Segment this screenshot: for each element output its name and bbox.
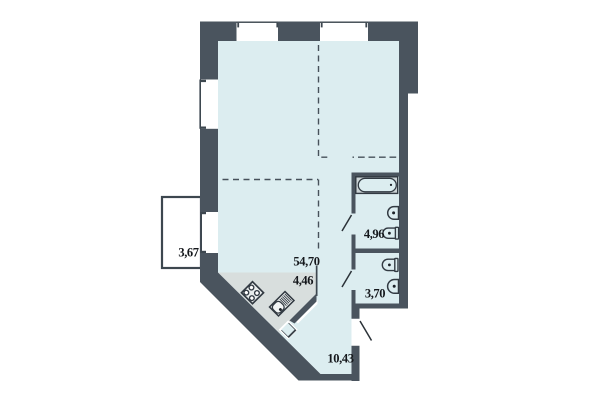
svg-text:4,96: 4,96 [364, 227, 384, 241]
svg-text:54,70: 54,70 [293, 255, 319, 269]
svg-text:3,67: 3,67 [178, 246, 198, 260]
svg-text:3,70: 3,70 [365, 286, 385, 300]
svg-text:10,43: 10,43 [327, 352, 353, 366]
svg-text:4,46: 4,46 [293, 274, 313, 288]
